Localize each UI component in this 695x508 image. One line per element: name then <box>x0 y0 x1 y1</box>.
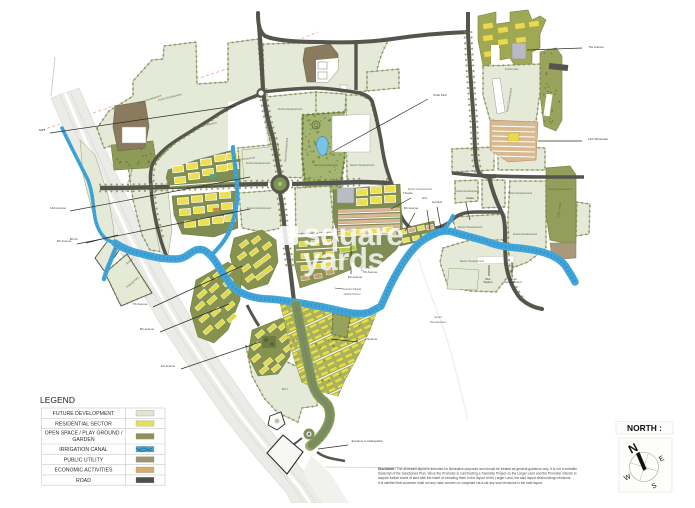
svg-text:Development: Development <box>430 320 446 324</box>
svg-text:Future Development: Future Development <box>508 191 533 195</box>
svg-text:Sector Development: Sector Development <box>314 163 339 167</box>
svg-text:3rd Avenue: 3rd Avenue <box>161 364 176 368</box>
svg-text:Future Development: Future Development <box>513 232 538 236</box>
svg-text:GARDEN: GARDEN <box>72 437 94 443</box>
svg-text:Future Development: Future Development <box>246 161 271 165</box>
svg-text:Future Development: Future Development <box>455 189 480 193</box>
svg-text:OPEN SPACE / PLAY GROUND /: OPEN SPACE / PLAY GROUND / <box>45 431 123 437</box>
svg-text:It is clarified that customer: It is clarified that customer shall not … <box>378 481 543 485</box>
svg-text:IRRIGATION CANAL: IRRIGATION CANAL <box>59 447 108 453</box>
svg-text:Future Dev.: Future Dev. <box>505 67 519 71</box>
svg-text:yards: yards <box>303 241 385 277</box>
svg-text:Gurukul Siksha: Gurukul Siksha <box>343 287 362 291</box>
svg-text:Glade: Glade <box>466 196 474 200</box>
svg-text:Erd.: Erd. <box>422 196 427 200</box>
svg-text:Global School: Global School <box>344 292 361 296</box>
svg-text:Future Development: Future Development <box>278 107 303 111</box>
svg-text:5th Avenue: 5th Avenue <box>140 327 155 331</box>
svg-text:LEGEND: LEGEND <box>40 395 75 405</box>
svg-text:Future Development: Future Development <box>548 187 573 191</box>
svg-text:Gurukul: Gurukul <box>432 200 442 204</box>
svg-text:8th Av.: 8th Av. <box>70 237 79 241</box>
svg-text:7th Avenue: 7th Avenue <box>133 302 148 306</box>
svg-text:Theatre: Theatre <box>403 191 413 195</box>
svg-text:PUBLIC UTILITY: PUBLIC UTILITY <box>64 457 104 463</box>
svg-text:Sector Development: Sector Development <box>460 259 485 263</box>
svg-text:NORTH :: NORTH : <box>627 423 662 433</box>
svg-text:Future Development: Future Development <box>247 206 272 210</box>
svg-text:BH 1: BH 1 <box>282 387 288 391</box>
svg-text:Station: Station <box>484 280 493 284</box>
svg-text:Sector: Sector <box>434 315 442 319</box>
svg-text:Petal Park: Petal Park <box>433 93 447 97</box>
svg-text:acquire further tracts of land: acquire further tracts of land with the … <box>378 476 571 480</box>
svg-text:ECONOMIC ACTIVITIES: ECONOMIC ACTIVITIES <box>55 468 113 474</box>
svg-text:Disclaimer: The aforesaid layo: Disclaimer: The aforesaid layout is inte… <box>378 467 577 471</box>
svg-text:Sector Development: Sector Development <box>458 225 483 229</box>
svg-text:6th Avenue: 6th Avenue <box>404 206 419 210</box>
svg-text:Sector Development: Sector Development <box>350 163 375 167</box>
svg-text:RESIDENTIAL SECTOR: RESIDENTIAL SECTOR <box>55 421 112 427</box>
svg-text:12th Avenue: 12th Avenue <box>50 206 66 210</box>
svg-text:Entrance to Uttarapatha: Entrance to Uttarapatha <box>352 439 383 443</box>
svg-text:The Arteries: The Arteries <box>588 45 604 49</box>
svg-text:x-Sectors: x-Sectors <box>365 337 378 341</box>
svg-text:ROAD: ROAD <box>76 478 91 484</box>
svg-text:12th Wholesale: 12th Wholesale <box>588 137 608 141</box>
svg-text:NH 8: NH 8 <box>39 128 46 132</box>
svg-text:Development: Development <box>504 280 521 284</box>
svg-text:FUTURE DEVELOPMENT: FUTURE DEVELOPMENT <box>53 411 116 417</box>
svg-text:transcript of the Sanctioned P: transcript of the Sanctioned Plan. Since… <box>378 472 577 476</box>
